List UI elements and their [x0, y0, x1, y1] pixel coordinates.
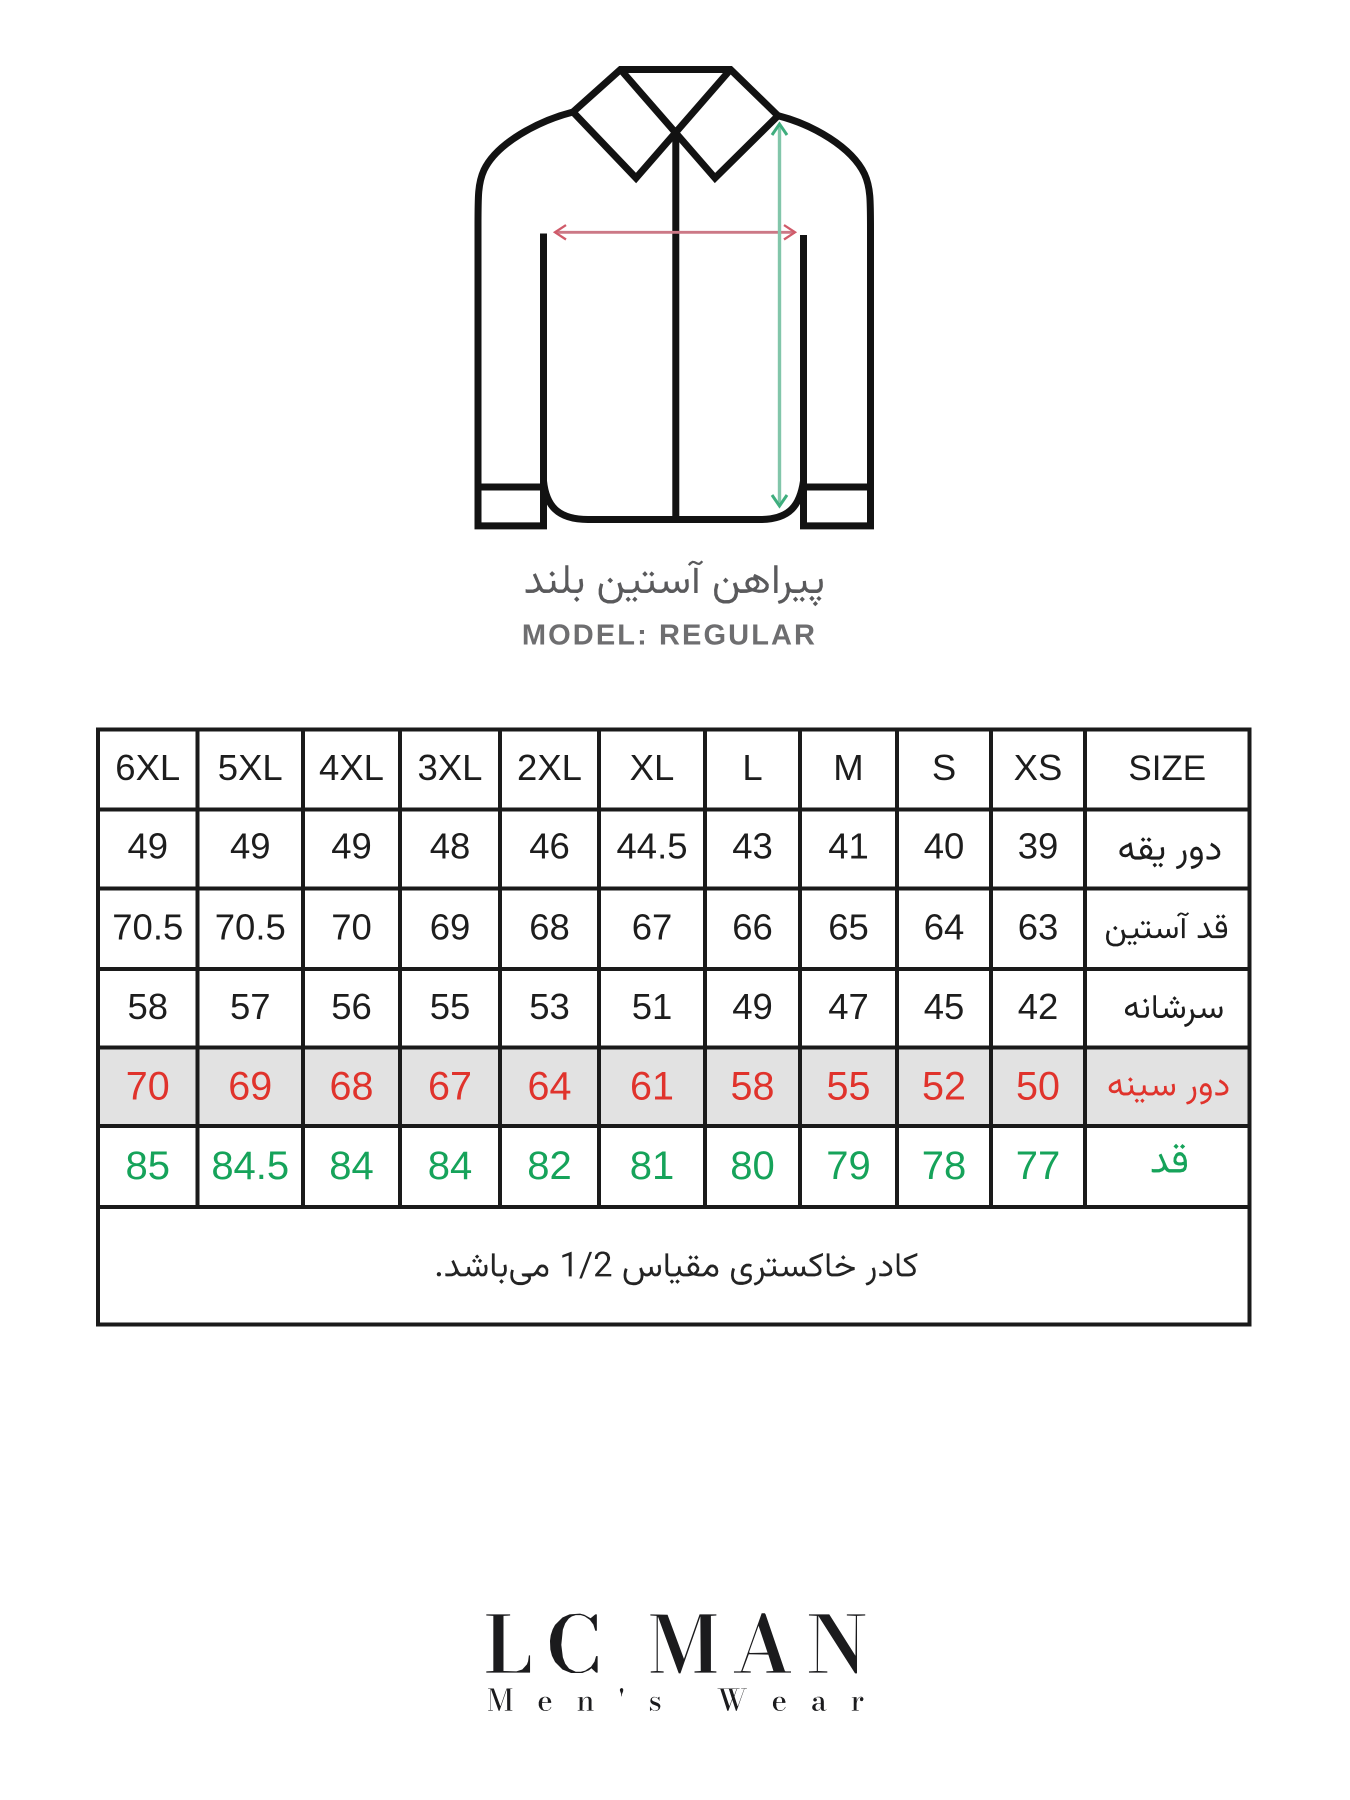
svg-text:XL: XL [630, 747, 675, 788]
svg-text:39: 39 [1018, 826, 1059, 867]
svg-text:53: 53 [529, 986, 570, 1027]
svg-text:82: 82 [527, 1144, 572, 1188]
svg-text:52: 52 [922, 1064, 966, 1108]
svg-text:84: 84 [428, 1144, 473, 1188]
svg-text:57: 57 [230, 986, 271, 1027]
svg-text:84.5: 84.5 [211, 1144, 289, 1188]
svg-text:80: 80 [730, 1144, 775, 1188]
svg-text:85: 85 [126, 1144, 171, 1188]
svg-text:67: 67 [632, 907, 673, 948]
svg-text:41: 41 [828, 826, 869, 867]
svg-text:49: 49 [331, 826, 372, 867]
svg-text:64: 64 [528, 1064, 572, 1108]
svg-text:68: 68 [330, 1064, 374, 1108]
svg-text:69: 69 [228, 1064, 272, 1108]
svg-text:55: 55 [827, 1064, 871, 1108]
svg-text:43: 43 [732, 826, 773, 867]
svg-text:55: 55 [430, 986, 471, 1027]
svg-text:70.5: 70.5 [215, 907, 286, 948]
svg-text:L: L [742, 747, 762, 788]
svg-text:51: 51 [632, 986, 673, 1027]
svg-text:67: 67 [428, 1064, 472, 1108]
svg-text:63: 63 [1018, 907, 1059, 948]
svg-text:6XL: 6XL [115, 747, 180, 788]
svg-text:79: 79 [826, 1144, 871, 1188]
svg-text:49: 49 [732, 986, 773, 1027]
svg-text:58: 58 [127, 986, 168, 1027]
svg-text:77: 77 [1016, 1144, 1061, 1188]
svg-text:68: 68 [529, 907, 570, 948]
svg-text:81: 81 [630, 1144, 675, 1188]
svg-text:50: 50 [1016, 1064, 1060, 1108]
svg-text:70: 70 [126, 1064, 170, 1108]
svg-text:84: 84 [329, 1144, 374, 1188]
svg-text:46: 46 [529, 826, 570, 867]
svg-text:47: 47 [828, 986, 869, 1027]
svg-text:69: 69 [430, 907, 471, 948]
svg-text:M: M [833, 747, 863, 788]
svg-text:65: 65 [828, 907, 869, 948]
svg-text:40: 40 [924, 826, 965, 867]
svg-text:78: 78 [922, 1144, 967, 1188]
svg-text:61: 61 [630, 1064, 674, 1108]
svg-text:58: 58 [731, 1064, 775, 1108]
svg-text:S: S [932, 747, 956, 788]
svg-text:SIZE: SIZE [1128, 749, 1206, 788]
svg-text:48: 48 [430, 826, 471, 867]
svg-text:XS: XS [1014, 747, 1063, 788]
svg-text:44.5: 44.5 [616, 826, 687, 867]
svg-text:66: 66 [732, 907, 773, 948]
svg-text:70: 70 [331, 907, 372, 948]
svg-text:45: 45 [924, 986, 965, 1027]
svg-text:49: 49 [127, 826, 168, 867]
svg-text:56: 56 [331, 986, 372, 1027]
svg-text:64: 64 [924, 907, 965, 948]
svg-text:2XL: 2XL [517, 747, 582, 788]
svg-text:4XL: 4XL [319, 747, 384, 788]
svg-text:MODEL: REGULAR: MODEL: REGULAR [522, 620, 817, 652]
svg-text:5XL: 5XL [218, 747, 283, 788]
svg-text:3XL: 3XL [418, 747, 483, 788]
svg-text:42: 42 [1018, 986, 1059, 1027]
svg-text:70.5: 70.5 [112, 907, 183, 948]
svg-text:49: 49 [230, 826, 271, 867]
